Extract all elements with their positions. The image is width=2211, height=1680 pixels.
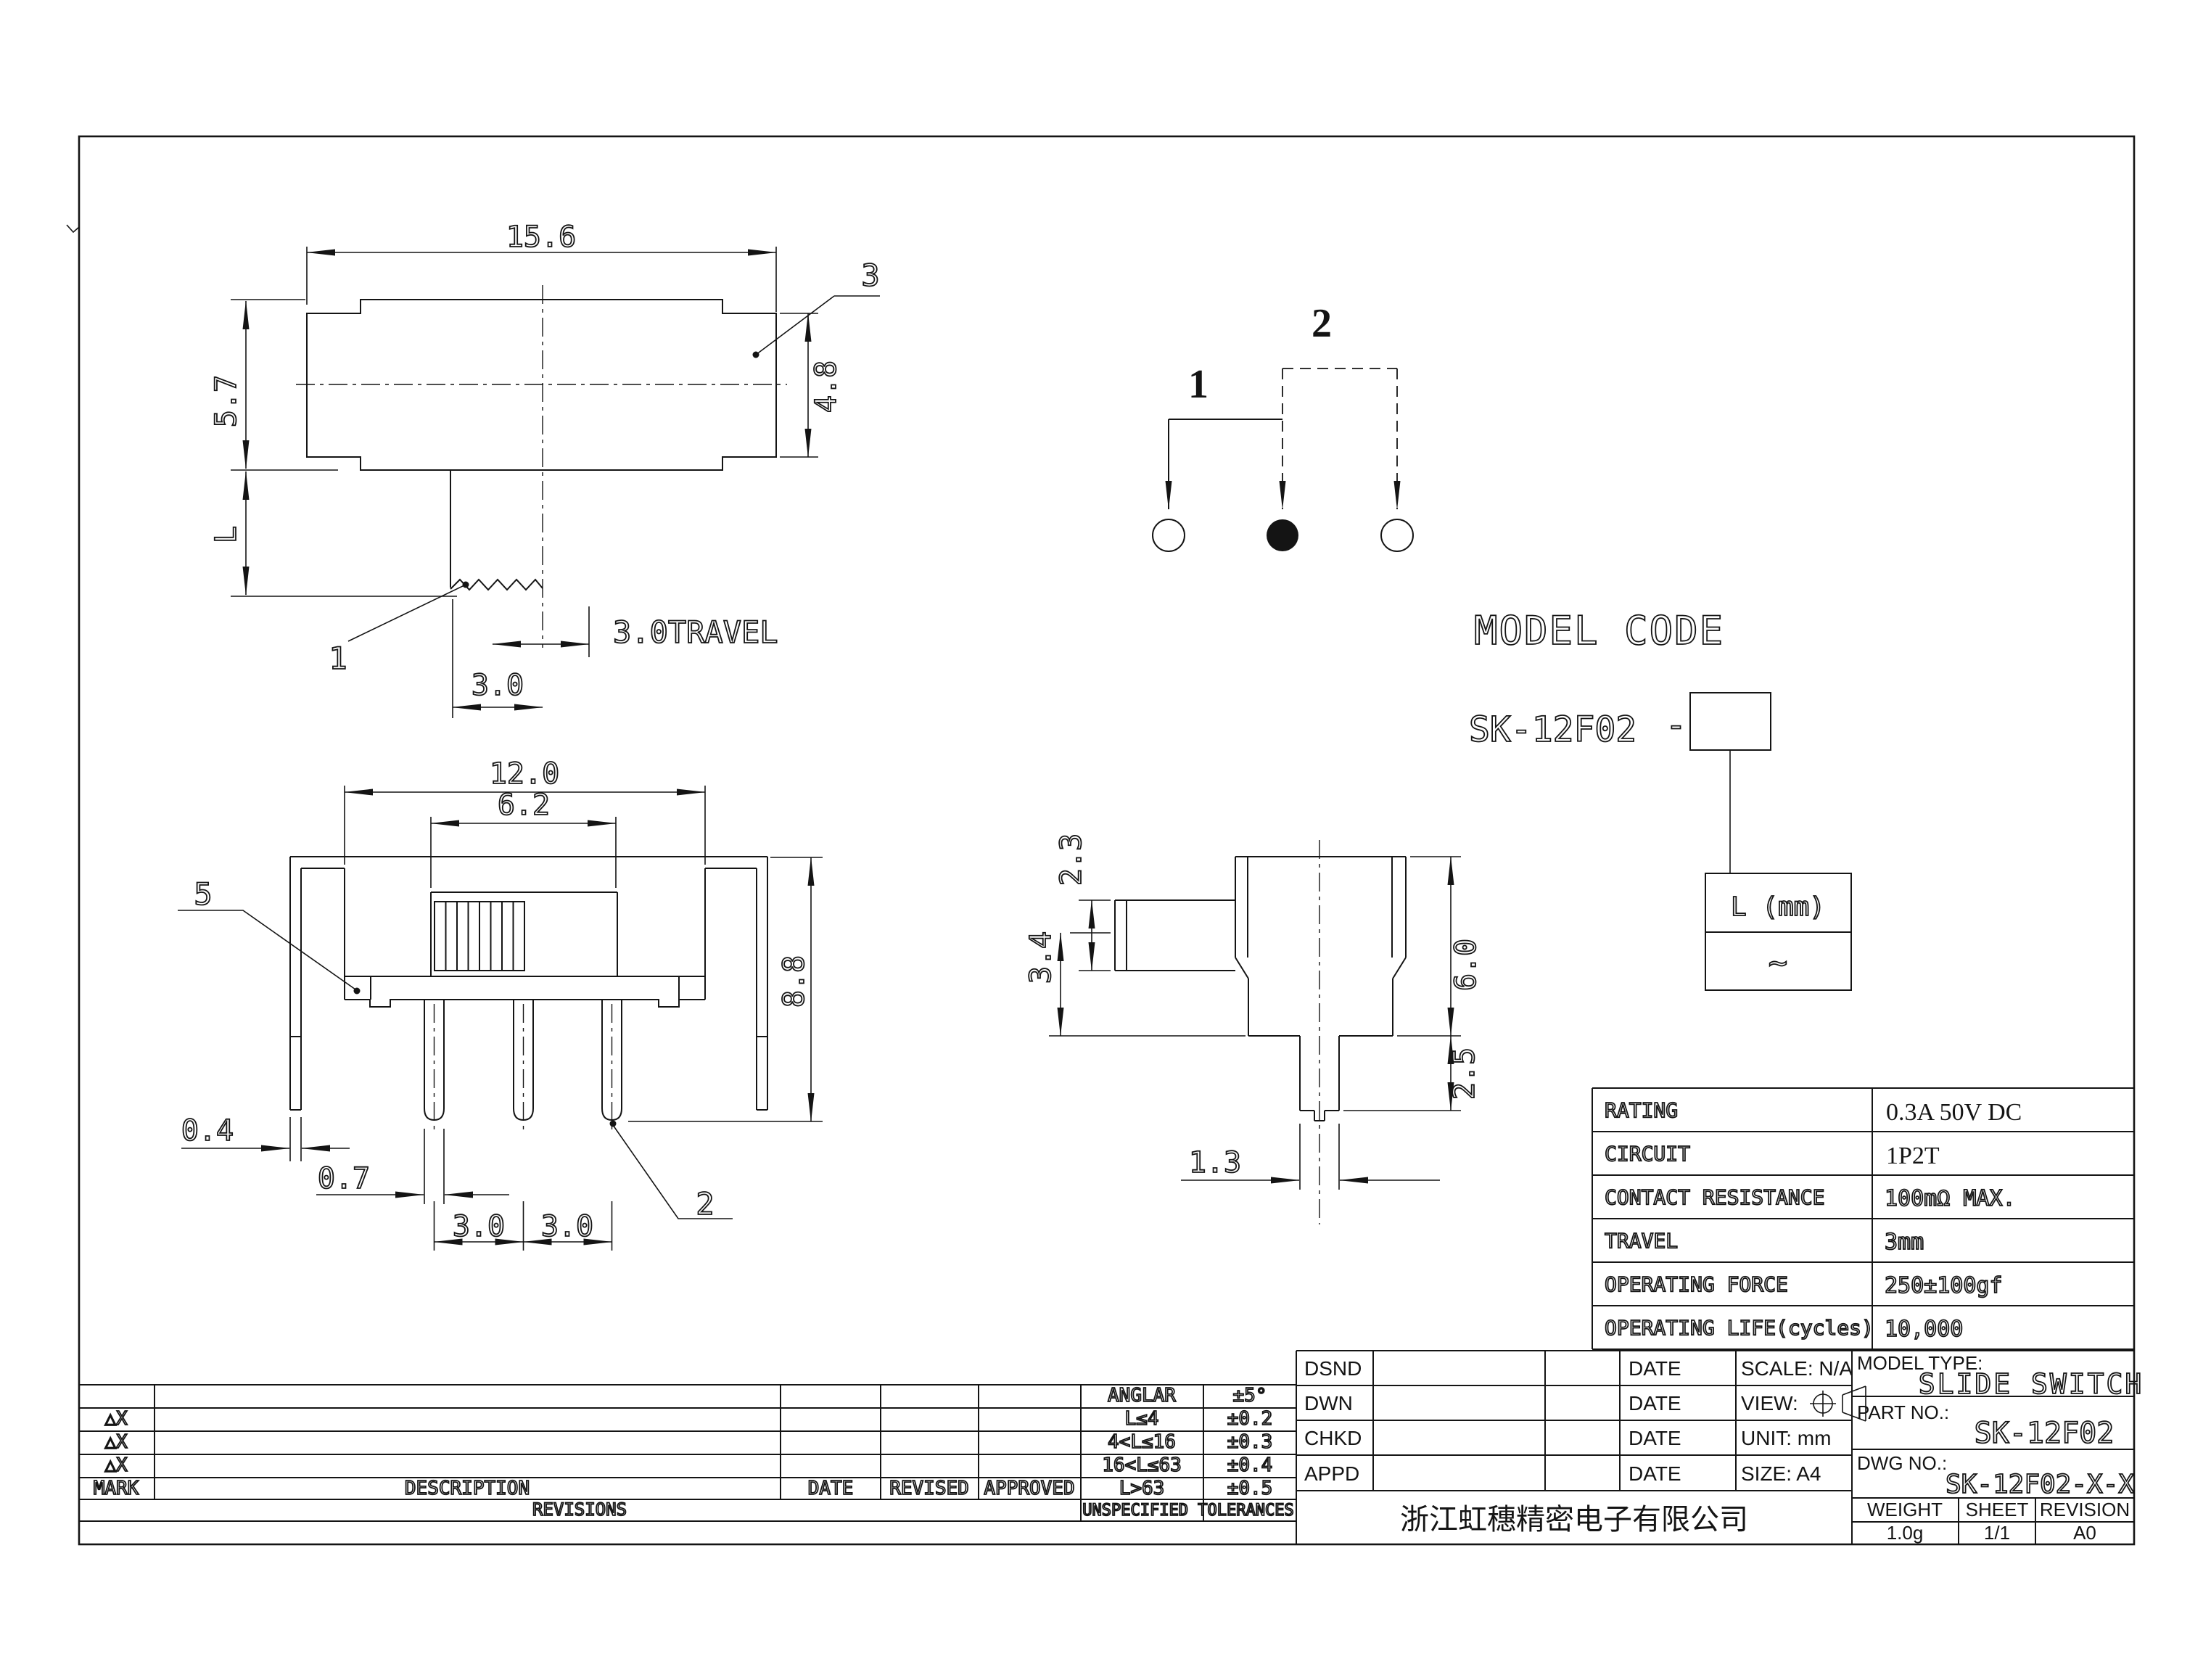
title-size: SIZE: A4 [1741,1462,1821,1485]
dim-side-step: 3.4 [1024,931,1058,984]
title-label-chkd: CHKD [1304,1427,1362,1449]
circuit-diagram: 1 2 [1153,301,1413,551]
dim-front-pitch-left: 3.0 [453,1210,505,1243]
dim-front-height: 8.8 [778,955,811,1008]
dim-side-body: 6.0 [1449,939,1483,991]
title-date-4: DATE [1629,1462,1681,1485]
tolerance-mark-1: △X [104,1408,128,1430]
tolerance-header-revised: REVISED [889,1478,969,1499]
engineering-drawing: 15.6 5.7 L 4.8 3.0TRAVEL 3.0 1 3 1 2 MOD… [0,0,2211,1680]
model-code-suffix-box [1690,693,1771,750]
stray-mark [67,225,79,232]
spec-label-circuit: CIRCUIT [1605,1142,1690,1166]
title-revision-value: A0 [2073,1522,2096,1544]
title-view: VIEW: [1741,1392,1798,1415]
unspecified-tolerances-label: UNSPECIFIED TOLERANCES [1082,1502,1293,1520]
spec-label-travel: TRAVEL [1605,1229,1678,1253]
dim-side-knob: 2.3 [1055,833,1088,886]
tolerance-value-gt63: ±0.5 [1227,1478,1273,1499]
spec-table: RATING CIRCUIT CONTACT RESISTANCE TRAVEL… [1592,1088,2134,1349]
model-code-length-cell: L (mm) [1731,892,1825,922]
front-view: 12.0 6.2 8.8 0.4 0.7 3.0 3.0 5 2 [178,757,823,1251]
spec-value-travel: 3mm [1885,1230,1924,1255]
tolerance-range-gt63: L>63 [1119,1478,1165,1499]
dim-top-length: L [210,526,243,543]
tolerance-header-description: DESCRIPTION [405,1478,530,1499]
title-part-no: SK-12F02 [1975,1417,2115,1450]
spec-label-operating-force: OPERATING FORCE [1605,1272,1788,1296]
dim-top-travel: 3.0TRAVEL [613,614,778,650]
callout-leader-2 [613,1125,733,1219]
side-view: 2.3 3.4 6.0 2.5 1.3 [1024,833,1483,1224]
title-label-dwn: DWN [1304,1392,1353,1415]
title-dwg-no-label: DWG NO.: [1857,1452,1947,1474]
circuit-terminal-3 [1381,519,1413,551]
tolerance-value-4-16: ±0.3 [1227,1431,1273,1453]
drawing-sheet: 15.6 5.7 L 4.8 3.0TRAVEL 3.0 1 3 1 2 MOD… [0,0,2211,1680]
dim-top-width: 15.6 [506,221,576,254]
title-revision-label: REVISION [2040,1499,2130,1520]
dim-top-height-right: 4.8 [810,361,843,413]
dim-side-pin-width: 1.3 [1189,1146,1241,1179]
front-view-knob [435,902,524,971]
dim-front-slot: 6.2 [498,788,550,822]
dim-front-bracket: 0.4 [181,1114,234,1148]
spec-label-operating-life: OPERATING LIFE(cycles) [1605,1316,1874,1340]
tolerance-value-le4: ±0.2 [1227,1408,1273,1430]
tolerance-range-le4: L≤4 [1125,1408,1159,1430]
callout-dot-5 [354,988,361,995]
circuit-terminal-1 [1153,519,1185,551]
circuit-position-1: 1 [1188,362,1209,407]
title-part-no-label: PART NO.: [1857,1401,1949,1423]
title-sheet-value: 1/1 [1984,1522,2010,1544]
title-date-1: DATE [1629,1357,1681,1380]
title-unit: UNIT: mm [1741,1427,1831,1449]
tolerance-value-16-63: ±0.4 [1227,1454,1273,1476]
dim-front-width: 12.0 [490,757,559,791]
title-date-3: DATE [1629,1427,1681,1449]
model-code-range-cell: ~ [1769,944,1788,981]
callout-leader-5 [178,910,355,989]
spec-value-contact-resistance: 100mΩ MAX. [1885,1186,2016,1211]
callout-label-2: 2 [696,1186,714,1222]
callout-label-3: 3 [861,258,879,293]
dim-side-pin-length: 2.5 [1448,1047,1481,1100]
tolerance-value-anglar: ±5° [1233,1385,1267,1407]
spec-label-contact-resistance: CONTACT RESISTANCE [1605,1185,1824,1209]
callout-label-1: 1 [329,641,347,676]
side-view-extension-lines [1049,857,1461,1190]
revisions-label: REVISIONS [532,1499,627,1520]
title-label-dsnd: DSND [1304,1357,1362,1380]
callout-dot-2 [610,1121,617,1127]
title-scale: SCALE: N/A [1741,1357,1853,1380]
front-view-body [290,857,767,1110]
front-view-pin-centerlines [435,1004,612,1133]
title-block: DSND DWN CHKD APPD DATE DATE DATE DATE S… [1296,1351,2144,1544]
top-view: 15.6 5.7 L 4.8 3.0TRAVEL 3.0 1 3 [210,221,880,718]
model-code-title: MODEL CODE [1474,608,1724,654]
tolerance-mark-3: △X [104,1454,128,1476]
callout-dot-1 [463,582,469,588]
dim-top-height-left: 5.7 [210,375,243,427]
spec-label-rating: RATING [1605,1098,1678,1122]
tolerance-range-4-16: 4<L≤16 [1108,1431,1176,1453]
title-weight-label: WEIGHT [1867,1499,1943,1520]
tolerance-table: △X △X △X MARK DESCRIPTION DATE REVISED A… [79,1385,1296,1521]
title-sheet-label: SHEET [1966,1499,2029,1520]
company-name: 浙江虹穗精密电子有限公司 [1400,1504,1748,1536]
tolerance-range-16-63: 16<L≤63 [1102,1454,1182,1476]
dim-front-pitch-right: 3.0 [541,1210,593,1243]
side-view-body [1115,857,1406,1121]
spec-value-operating-force: 250±100gf [1885,1273,2003,1298]
dim-front-pin-width: 0.7 [318,1162,370,1195]
circuit-terminal-common [1267,519,1298,551]
model-code-section: MODEL CODE SK-12F02 - L (mm) ~ [1469,608,1851,990]
model-code-base: SK-12F02 [1469,709,1636,750]
tolerance-range-anglar: ANGLAR [1108,1385,1176,1407]
spec-value-rating: 0.3A 50V DC [1886,1099,2022,1126]
top-view-centerlines [296,285,787,648]
tolerance-mark-2: △X [104,1431,128,1453]
title-weight-value: 1.0g [1887,1522,1924,1544]
spec-value-circuit: 1P2T [1886,1142,1940,1169]
title-dwg-no: SK-12F02-X-X [1946,1470,2134,1499]
callout-dot-3 [753,352,759,358]
callout-leader-3 [756,296,880,355]
model-code-separator: - [1666,705,1687,746]
tolerance-header-approved: APPROVED [984,1478,1074,1499]
spec-value-operating-life: 10,000 [1885,1317,1963,1342]
tolerance-header-mark: MARK [94,1478,139,1499]
circuit-position-2: 2 [1312,301,1332,346]
dim-top-knob-offset: 3.0 [472,669,524,702]
title-model-type: SLIDE SWITCH [1919,1368,2144,1400]
callout-leader-1 [348,585,466,641]
title-date-2: DATE [1629,1392,1681,1415]
tolerance-header-date: DATE [808,1478,854,1499]
title-label-appd: APPD [1304,1462,1359,1485]
spec-table-grid [1592,1088,2134,1349]
callout-label-5: 5 [194,876,212,912]
